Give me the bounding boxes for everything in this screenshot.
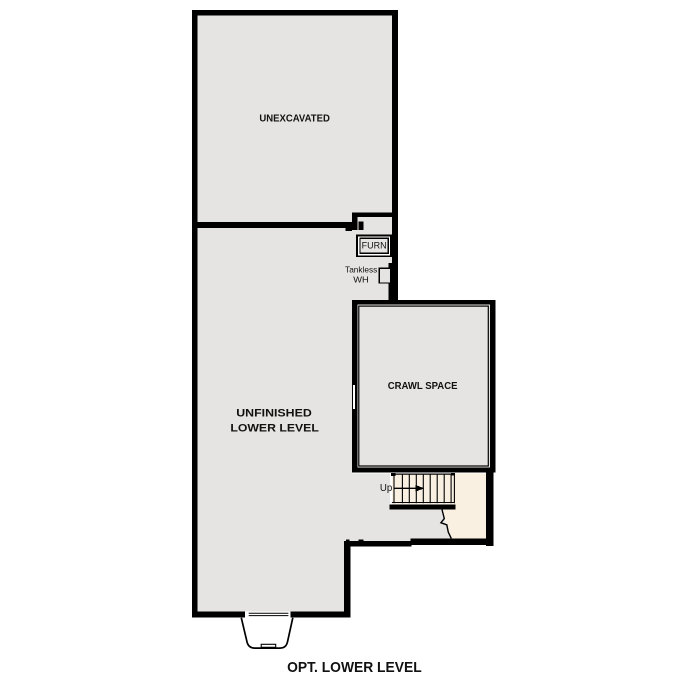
svg-text:UNFINISHED: UNFINISHED [236,407,312,419]
svg-text:Tankless: Tankless [345,265,377,275]
svg-text:OPT. LOWER LEVEL: OPT. LOWER LEVEL [287,659,422,676]
svg-text:Up: Up [380,483,392,494]
svg-text:CRAWL SPACE: CRAWL SPACE [388,381,458,392]
svg-text:UNEXCAVATED: UNEXCAVATED [259,114,330,125]
svg-text:WH: WH [353,275,369,285]
svg-text:LOWER LEVEL: LOWER LEVEL [230,422,319,434]
svg-text:FURN: FURN [362,241,387,251]
